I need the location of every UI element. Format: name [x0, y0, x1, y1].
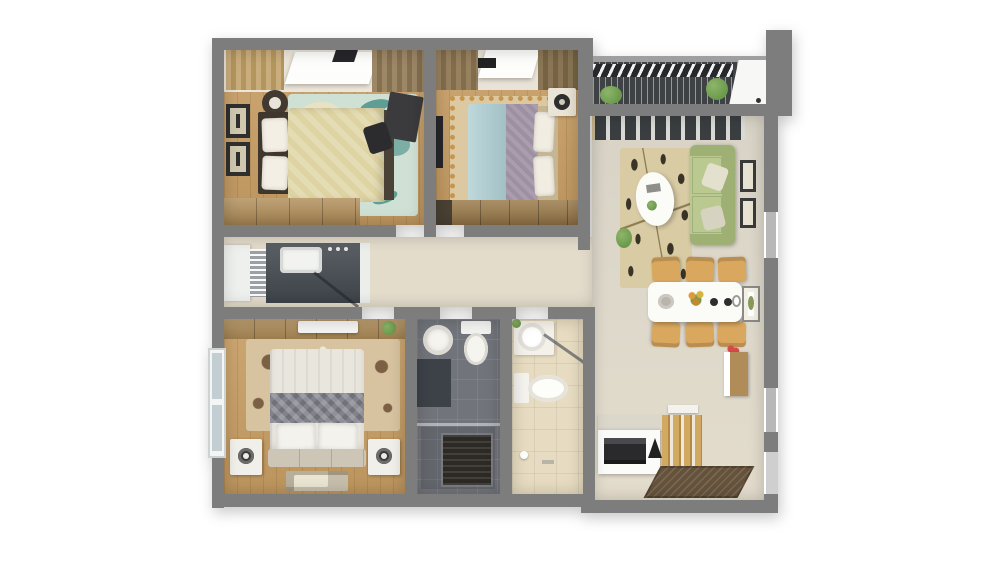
- plate: [658, 294, 674, 309]
- shower-glass-line: [417, 423, 500, 426]
- sofa-armrest: [690, 234, 722, 245]
- curtain-right: [372, 50, 424, 92]
- nightstand: [548, 88, 576, 116]
- wall-bedroom-divider: [424, 38, 436, 237]
- window: [285, 52, 379, 84]
- right-wall-window: [764, 212, 778, 258]
- nightstand: [368, 439, 400, 475]
- dining-chair: [718, 257, 747, 283]
- wall-art-frame: [226, 142, 250, 176]
- window-frame-bar: [332, 50, 358, 62]
- window-frame-bar: [478, 58, 496, 68]
- toilet-bowl: [528, 375, 568, 402]
- bath-accessory: [542, 460, 554, 464]
- kitchen-sink: [280, 247, 322, 273]
- wall-shelf: [668, 405, 698, 413]
- curtain-left: [436, 50, 478, 90]
- balcony-drain-dot: [756, 98, 761, 103]
- wood-slat-screen: [662, 415, 702, 471]
- wall-bedroom-living: [578, 44, 590, 250]
- wall-bottom-left: [212, 494, 595, 507]
- ac-unit: [298, 321, 358, 333]
- stove-knob-icon: [344, 247, 348, 251]
- counter-end-panel: [360, 243, 370, 303]
- bathroom-dark: [417, 319, 500, 494]
- small-plate: [724, 298, 732, 306]
- nightstand: [230, 439, 262, 475]
- sofa-armrest: [690, 145, 722, 156]
- pillow: [533, 156, 555, 197]
- wall-corridor-bottom: [212, 307, 362, 319]
- wall-bottom-right: [581, 500, 778, 513]
- bed-sheet: [468, 104, 506, 204]
- dresser: [224, 198, 360, 225]
- balcony-plant-icon: [600, 86, 622, 104]
- lamp-icon: [238, 448, 254, 464]
- sofa-back: [722, 145, 735, 245]
- bedroom-bottom-left: [224, 319, 405, 494]
- entry-door: [764, 452, 778, 494]
- wall-top: [212, 38, 593, 50]
- wall-corridor-bottom: [472, 307, 516, 319]
- floor-mat: [286, 471, 348, 491]
- dining-chair: [686, 322, 715, 348]
- flower-centerpiece-icon: [686, 289, 706, 311]
- wall-corridor-bottom: [394, 307, 440, 319]
- window-pane: [212, 353, 222, 399]
- appliance-front: [604, 438, 646, 464]
- pillow: [261, 156, 288, 191]
- pillow: [276, 422, 317, 451]
- left-wall-window: [208, 348, 226, 458]
- decor-arrow-icon: [648, 438, 662, 458]
- wall-bath-divider: [500, 319, 512, 494]
- table-tray: [646, 183, 661, 193]
- wall-bedroom-bath: [405, 319, 417, 494]
- plate: [732, 295, 741, 307]
- dining-chair: [651, 256, 680, 282]
- kitchen-corridor: [222, 237, 595, 307]
- small-plate: [710, 298, 718, 306]
- bed-runner-chevron: [270, 393, 364, 423]
- toilet-tank: [514, 373, 529, 403]
- toilet-bowl: [464, 333, 488, 365]
- lamp-center: [243, 453, 249, 459]
- bath-accessory: [520, 451, 528, 459]
- balcony: [593, 56, 766, 110]
- shoe-cabinet: [598, 430, 660, 474]
- dining-chair: [651, 321, 680, 347]
- floor-plant-icon: [616, 228, 632, 248]
- vanity-counter: [417, 359, 451, 407]
- pillow: [533, 112, 555, 153]
- sliding-door-band: [595, 116, 745, 140]
- wall-tv: [436, 116, 443, 168]
- console-table: [724, 352, 748, 396]
- shower-mat: [443, 435, 491, 485]
- wall-corridor-top: [424, 225, 436, 237]
- dish-rack: [250, 249, 266, 297]
- round-sink: [423, 325, 453, 355]
- balcony-plant-icon: [706, 78, 728, 100]
- doormat: [643, 466, 754, 498]
- wall-art-frame: [740, 160, 756, 192]
- table-plant-icon: [646, 200, 657, 211]
- wall-art-frame: [742, 286, 760, 322]
- basket-inner: [269, 97, 281, 109]
- wall-living-top: [581, 104, 778, 116]
- bed-headboard: [268, 449, 366, 467]
- cabinet: [436, 200, 452, 225]
- wall-corridor-top: [212, 225, 396, 237]
- stove-knob-icon: [336, 247, 340, 251]
- right-wall-window: [764, 388, 778, 432]
- dining-table: [648, 282, 742, 322]
- window-pane: [212, 405, 222, 451]
- plant-icon: [512, 319, 521, 328]
- wall-art-frame: [226, 104, 250, 138]
- wardrobe: [452, 200, 578, 225]
- wall-corridor-top: [464, 225, 590, 237]
- bed-duvet: [288, 108, 386, 202]
- round-sink: [518, 323, 546, 351]
- apartment-plan: [0, 0, 1000, 563]
- bathroom-light: [512, 319, 583, 494]
- lamp-center: [559, 99, 565, 105]
- dining-chair: [686, 257, 715, 283]
- living-dining-entry: [592, 116, 764, 500]
- lamp-center: [381, 453, 387, 459]
- curtain-left: [226, 50, 284, 90]
- balcony-deck-hatch: [593, 64, 733, 77]
- wall-bath-entry: [583, 307, 595, 500]
- floor-plan-image: [0, 0, 1000, 563]
- lamp-icon: [376, 448, 392, 464]
- curtain-right: [538, 50, 578, 90]
- kitchen-cabinet-front: [224, 245, 250, 301]
- wall-art-frame: [740, 198, 756, 228]
- pillow: [261, 118, 288, 153]
- botanical-print: [748, 296, 754, 310]
- bedroom-top-left: [224, 50, 424, 225]
- bed-blanket: [506, 104, 538, 204]
- plant-icon: [382, 321, 396, 335]
- pillow: [318, 422, 359, 451]
- sofa: [690, 145, 735, 245]
- stove-knob-icon: [328, 247, 332, 251]
- lamp-icon: [554, 94, 570, 110]
- bedroom-top-middle: [436, 50, 578, 225]
